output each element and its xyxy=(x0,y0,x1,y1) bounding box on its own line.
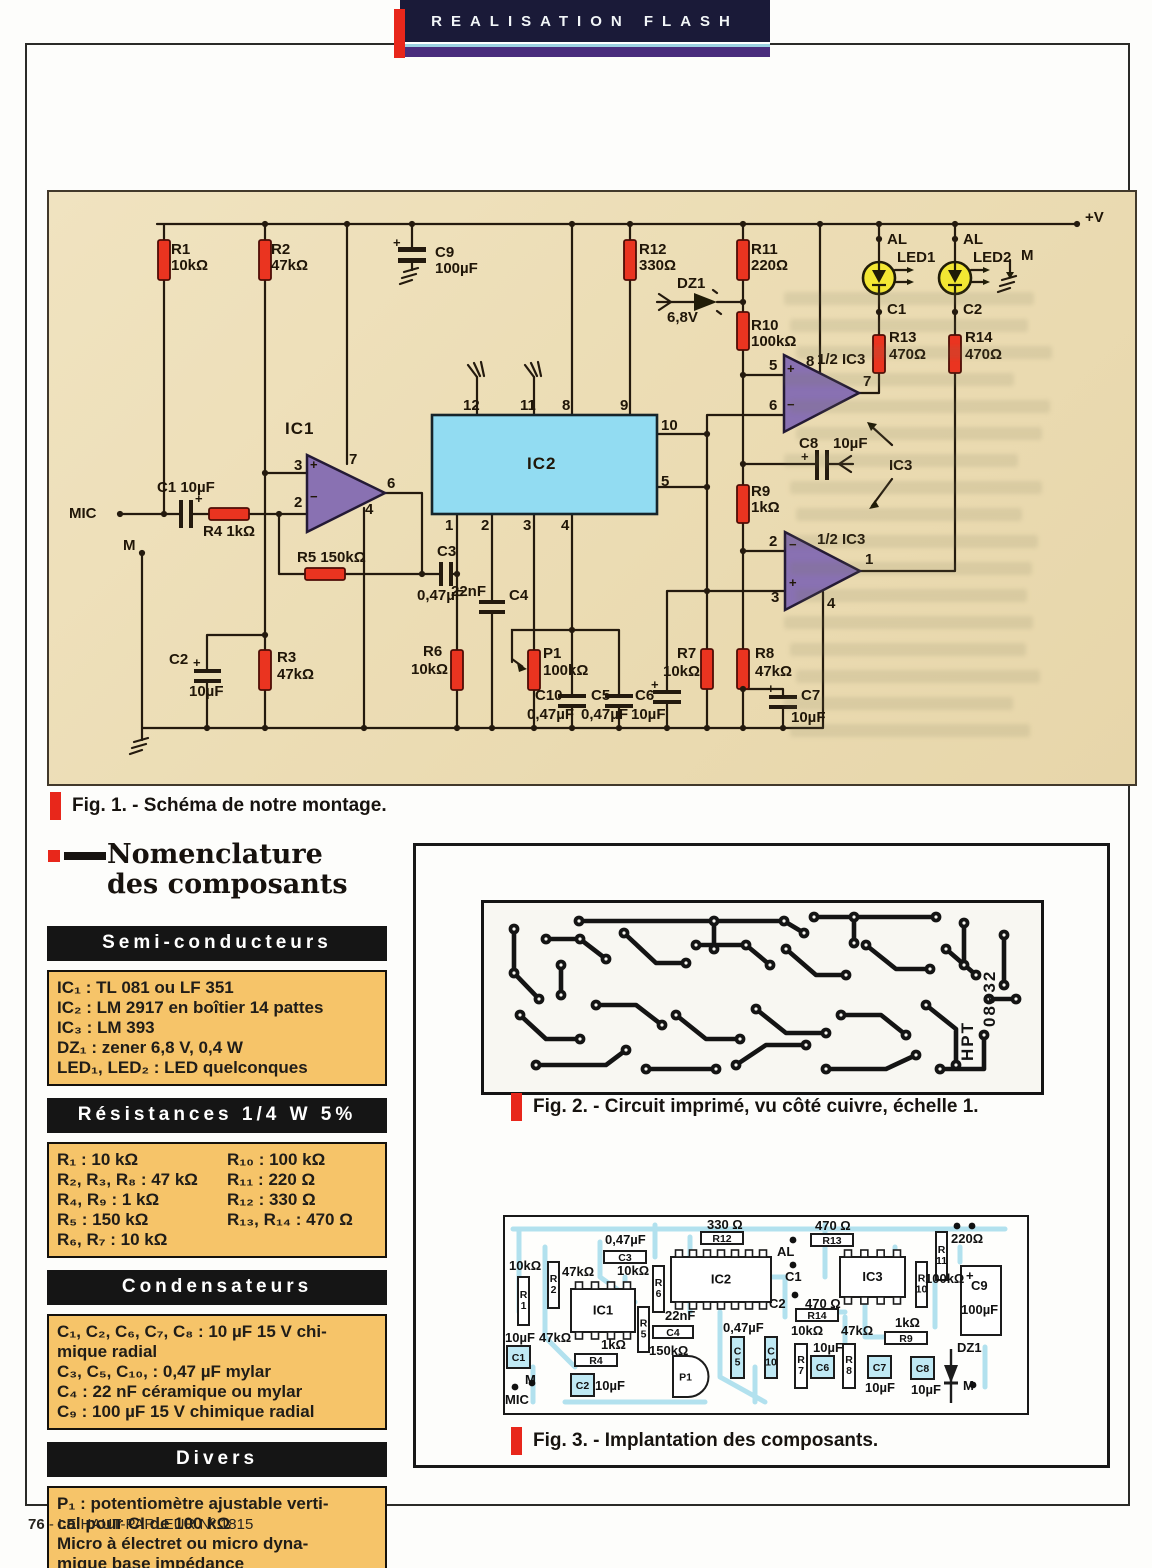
schematic-label: P1 xyxy=(543,646,561,661)
schematic-label: R9 xyxy=(751,484,770,499)
implantation-label: 470 Ω xyxy=(815,1218,851,1233)
implantation-part-R9: R9 xyxy=(885,1332,927,1345)
schematic-label: 10µF xyxy=(189,684,224,699)
schematic-label: 1kΩ xyxy=(751,500,780,515)
fig1-caption: Fig. 1. - Schéma de notre montage. xyxy=(72,795,387,817)
implantation-label: 10kΩ xyxy=(509,1258,541,1273)
svg-text:R13: R13 xyxy=(822,1235,841,1247)
bleedthrough-line xyxy=(784,373,1014,386)
schematic-label: R12 xyxy=(639,242,667,257)
schematic-label: 330Ω xyxy=(639,258,676,273)
schematic-label: 2 xyxy=(481,518,489,533)
banner-stripe-purple xyxy=(404,47,770,57)
section-box-semiconducteurs: IC₁ : TL 081 ou LF 351IC₂ : LM 2917 en b… xyxy=(47,970,387,1086)
implantation-label: MIC xyxy=(505,1392,529,1407)
schematic-label: C5 xyxy=(591,688,610,703)
fig3-implantation: IC1IC2IC3R1R2R6R5R7R8R10R11C3R12R13R14R9… xyxy=(503,1215,1029,1415)
nomenclature-line: IC₃ : LM 393 xyxy=(57,1018,377,1038)
footer-text: - LE HAUT-PARLEUR Nº 1815 xyxy=(45,1516,254,1533)
schematic-label: 100kΩ xyxy=(543,663,588,678)
svg-text:C8: C8 xyxy=(916,1363,930,1375)
implantation-label: 1kΩ xyxy=(601,1337,626,1352)
schematic-label: + xyxy=(193,656,201,669)
schematic-label: 10kΩ xyxy=(663,664,700,679)
nomenclature-line: IC₂ : LM 2917 en boîtier 14 pattes xyxy=(57,998,377,1018)
schematic-label: R11 xyxy=(751,242,778,257)
bleedthrough-line xyxy=(790,400,1050,413)
schematic-label: 11 xyxy=(520,398,536,413)
section-header-resistances: Résistances 1/4 W 5% xyxy=(47,1098,387,1133)
schematic-label: IC2 xyxy=(527,455,556,472)
schematic-label: 4 xyxy=(365,502,373,517)
fig2-pcb: HPT 08932 xyxy=(481,900,1044,1095)
schematic-label: 3 xyxy=(523,518,531,533)
implantation-part-R1: R1 xyxy=(518,1277,529,1325)
page-number: 76 xyxy=(28,1516,45,1533)
schematic-label: 10µF xyxy=(791,710,826,725)
magazine-page: REALISATION FLASH xyxy=(0,0,1152,1568)
nomenclature-line: P₁ : potentiomètre ajustable verti- xyxy=(57,1494,377,1514)
svg-text:R9: R9 xyxy=(899,1333,913,1345)
implantation-label: 47kΩ xyxy=(539,1330,571,1345)
schematic-label: + xyxy=(195,492,203,505)
implantation-label: 150kΩ xyxy=(649,1343,688,1358)
implantation-part-P1: P1 xyxy=(673,1356,708,1397)
nomenclature-line: C₉ : 100 µF 15 V chimique radial xyxy=(57,1402,377,1422)
implantation-part-C1: C1 xyxy=(507,1346,530,1368)
implantation-label: 10µF xyxy=(911,1382,941,1397)
implantation-label: + xyxy=(966,1268,974,1283)
svg-text:IC2: IC2 xyxy=(711,1272,731,1287)
nomenclature-line: C₄ : 22 nF céramique ou mylar xyxy=(57,1382,377,1402)
schematic-label: 100µF xyxy=(435,261,478,276)
nomenclature-line: R₅ : 150 kΩ xyxy=(57,1210,227,1230)
schematic-label: LED1 xyxy=(897,250,935,265)
section-box-resistances: R₁ : 10 kΩR₂, R₃, R₈ : 47 kΩR₄, R₉ : 1 k… xyxy=(47,1142,387,1258)
implantation-label: 10kΩ xyxy=(617,1263,649,1278)
implantation-label: 10µF xyxy=(813,1340,843,1355)
schematic-label: R5 150kΩ xyxy=(297,550,366,565)
bleedthrough-line xyxy=(796,670,1040,683)
implantation-label: 330 Ω xyxy=(707,1217,743,1232)
nomenclature-line: R₁₂ : 330 Ω xyxy=(227,1190,353,1210)
banner: REALISATION FLASH xyxy=(400,0,770,42)
schematic-label: R8 xyxy=(755,646,774,661)
resistances-col2: R₁₀ : 100 kΩR₁₁ : 220 ΩR₁₂ : 330 ΩR₁₃, R… xyxy=(227,1150,353,1250)
fig2-caption-bar xyxy=(511,1093,522,1121)
implantation-part-R12: R12 xyxy=(701,1232,743,1245)
schematic-label: + xyxy=(767,682,775,695)
pcb-drawing: HPT 08932 xyxy=(484,903,1041,1092)
dash-icon xyxy=(64,852,106,860)
schematic-label: 6,8V xyxy=(667,310,698,325)
implantation-part-R6: R6 xyxy=(653,1266,664,1312)
schematic-label: R7 xyxy=(677,646,696,661)
implantation-label: M xyxy=(525,1372,536,1387)
implantation-label: 0,47µF xyxy=(723,1320,764,1335)
schematic-label: C1 10µF xyxy=(157,480,215,495)
implantation-part-C6: C6 xyxy=(811,1356,834,1378)
bleedthrough-line xyxy=(784,616,1033,629)
schematic-label: C3 xyxy=(437,544,456,559)
implantation-part-IC2: IC2 xyxy=(671,1250,771,1309)
schematic-label: M xyxy=(123,538,136,553)
fig2-caption: Fig. 2. - Circuit imprimé, vu côté cuivr… xyxy=(533,1096,979,1118)
implantation-label: 10kΩ xyxy=(791,1323,823,1338)
fig1-caption-bar xyxy=(50,792,61,820)
implantation-label: DZ1 xyxy=(957,1340,982,1355)
bleedthrough-line xyxy=(784,535,1038,548)
schematic-label: + xyxy=(789,576,797,589)
bleedthrough-line xyxy=(790,481,1042,494)
implantation-label: M xyxy=(963,1378,974,1393)
bleedthrough-line xyxy=(784,454,1018,467)
section-header-divers: Divers xyxy=(47,1442,387,1477)
bleedthrough-line xyxy=(796,508,1022,521)
schematic-label: 7 xyxy=(349,452,357,467)
implantation-label: 220Ω xyxy=(951,1231,983,1246)
schematic-label: AL xyxy=(963,232,983,247)
bleedthrough-line xyxy=(790,643,1026,656)
nomenclature-line: IC₁ : TL 081 ou LF 351 xyxy=(57,978,377,998)
implantation-part-R2: R2 xyxy=(548,1262,559,1308)
schematic-label: 5 xyxy=(769,358,777,373)
implantation-part-component xyxy=(944,1349,958,1403)
schematic-label: 3 xyxy=(771,590,779,605)
fig3-caption-bar xyxy=(511,1427,522,1455)
schematic-label: 10 xyxy=(661,418,678,433)
schematic-label: C9 xyxy=(435,245,454,260)
bleedthrough-line xyxy=(796,589,1027,602)
implantation-label: C2 xyxy=(769,1296,786,1311)
nomenclature-line: R₁₀ : 100 kΩ xyxy=(227,1150,353,1170)
banner-red-bar xyxy=(394,9,405,58)
schematic-label: R6 xyxy=(423,644,442,659)
schematic-label: IC1 xyxy=(285,420,314,437)
figures-box: HPT 08932 Fig. 2. - Circuit imprimé, vu … xyxy=(413,843,1110,1468)
fig3-caption: Fig. 3. - Implantation des composants. xyxy=(533,1430,878,1452)
nomenclature-line: mique base impédance xyxy=(57,1554,377,1568)
svg-text:IC3: IC3 xyxy=(862,1269,882,1284)
schematic-label: R1 xyxy=(171,242,190,257)
implantation-label: 22nF xyxy=(665,1308,695,1323)
schematic-label: 6 xyxy=(387,476,395,491)
page-footer: 76 - LE HAUT-PARLEUR Nº 1815 xyxy=(28,1516,253,1533)
svg-text:R12: R12 xyxy=(712,1233,731,1245)
implantation-part-C5: C5 xyxy=(731,1337,744,1378)
implantation-label: 100µF xyxy=(961,1302,998,1317)
implantation-label: 47kΩ xyxy=(841,1323,873,1338)
bleedthrough-line xyxy=(790,724,1030,737)
nomenclature-line: DZ₁ : zener 6,8 V, 0,4 W xyxy=(57,1038,377,1058)
svg-text:C1: C1 xyxy=(512,1352,526,1364)
section-box-condensateurs: C₁, C₂, C₆, C₇, C₈ : 10 µF 15 V chi-miqu… xyxy=(47,1314,387,1430)
red-square-icon xyxy=(48,850,60,862)
schematic-label: 47kΩ xyxy=(755,664,792,679)
svg-text:C6: C6 xyxy=(816,1362,830,1374)
svg-text:R14: R14 xyxy=(807,1310,826,1322)
implantation-drawing: IC1IC2IC3R1R2R6R5R7R8R10R11C3R12R13R14R9… xyxy=(505,1217,1027,1413)
implantation-label: C1 xyxy=(785,1269,802,1284)
bleedthrough-line xyxy=(784,292,1034,305)
nomenclature-line: R₁ : 10 kΩ xyxy=(57,1150,227,1170)
schematic-label: C10 xyxy=(535,688,563,703)
schematic-label: AL xyxy=(887,232,907,247)
implantation-part-C2: C2 xyxy=(571,1374,594,1396)
nomenclature: Nomenclature des composants Semi-conduct… xyxy=(47,840,387,1568)
schematic-label: 0,47µF xyxy=(581,707,628,722)
schematic-label: 10kΩ xyxy=(411,662,448,677)
bleedthrough-line xyxy=(796,346,1052,359)
schematic-label: − xyxy=(310,490,318,503)
schematic-label: 47kΩ xyxy=(277,667,314,682)
implantation-part-IC3: IC3 xyxy=(840,1250,905,1304)
section-header-condensateurs: Condensateurs xyxy=(47,1270,387,1305)
implantation-label: 47kΩ xyxy=(562,1264,594,1279)
schematic-label: 10µF xyxy=(631,707,666,722)
schematic-label: R2 xyxy=(271,242,290,257)
implantation-part-R13: R13 xyxy=(811,1234,853,1247)
schematic-label: M xyxy=(1021,248,1034,263)
pcb-marking-hpt: HPT xyxy=(958,1021,977,1061)
section-header-semiconducteurs: Semi-conducteurs xyxy=(47,926,387,961)
bleedthrough-line xyxy=(784,697,1013,710)
svg-text:IC1: IC1 xyxy=(593,1303,613,1318)
schematic-label: 2 xyxy=(294,495,302,510)
implantation-part-R4: R4 xyxy=(575,1354,617,1367)
svg-text:R4: R4 xyxy=(589,1355,603,1367)
svg-text:C7: C7 xyxy=(873,1362,887,1374)
banner-title: REALISATION FLASH xyxy=(431,13,739,30)
pcb-marking-number: 08932 xyxy=(980,970,999,1027)
implantation-label: 10µF xyxy=(595,1378,625,1393)
schematic-label: 5 xyxy=(661,474,669,489)
implantation-label: 10µF xyxy=(865,1380,895,1395)
schematic-label: + xyxy=(310,458,318,471)
resistances-col1: R₁ : 10 kΩR₂, R₃, R₈ : 47 kΩR₄, R₉ : 1 k… xyxy=(57,1150,227,1250)
bleedthrough-line xyxy=(790,319,1028,332)
nomenclature-line: R₁₁ : 220 Ω xyxy=(227,1170,353,1190)
nomenclature-line: LED₁, LED₂ : LED quelconques xyxy=(57,1058,377,1078)
nomenclature-line: Micro à électret ou micro dyna- xyxy=(57,1534,377,1554)
schematic-label: 6 xyxy=(769,398,777,413)
nomenclature-line: R₄, R₉ : 1 kΩ xyxy=(57,1190,227,1210)
schematic-label: 4 xyxy=(561,518,569,533)
schematic-label: +V xyxy=(1085,210,1104,225)
schematic-label: 22nF xyxy=(451,584,486,599)
schematic-label: C4 xyxy=(509,588,528,603)
schematic-label: 2 xyxy=(769,534,777,549)
schematic-label: R10 xyxy=(751,318,779,333)
schematic-label: 8 xyxy=(562,398,570,413)
nomenclature-line: mique radial xyxy=(57,1342,377,1362)
schematic-label: C2 xyxy=(169,652,188,667)
implantation-part-C10: C10 xyxy=(765,1337,777,1378)
implantation-label: 10µF xyxy=(505,1330,535,1345)
implantation-label: AL xyxy=(777,1244,794,1259)
svg-text:C2: C2 xyxy=(576,1380,590,1392)
fig1-schematic-panel: +VR110kΩR247kΩ+C9100µFR12330ΩR11220ΩDZ16… xyxy=(47,190,1137,786)
schematic-label: 10kΩ xyxy=(171,258,208,273)
schematic-label: R13 xyxy=(889,330,917,345)
bleedthrough-line xyxy=(790,562,1032,575)
implantation-part-R5: R5 xyxy=(638,1307,649,1352)
implantation-part-IC1: IC1 xyxy=(571,1282,635,1339)
schematic-label: 220Ω xyxy=(751,258,788,273)
schematic-label: 9 xyxy=(620,398,628,413)
implantation-part-C8: C8 xyxy=(911,1357,934,1379)
nomenclature-line: R₁₃, R₁₄ : 470 Ω xyxy=(227,1210,353,1230)
implantation-label: 1kΩ xyxy=(895,1315,920,1330)
schematic-label: + xyxy=(393,236,401,249)
schematic-label: R3 xyxy=(277,650,296,665)
schematic-label: 1 xyxy=(445,518,453,533)
svg-text:P1: P1 xyxy=(679,1372,692,1384)
bleedthrough-line xyxy=(796,427,1042,440)
nomenclature-line: C₁, C₂, C₆, C₇, C₈ : 10 µF 15 V chi- xyxy=(57,1322,377,1342)
implantation-part-R8: R8 xyxy=(843,1344,855,1388)
nomenclature-line: C₃, C₅, C₁₀, : 0,47 µF mylar xyxy=(57,1362,377,1382)
schematic-label: R14 xyxy=(965,330,993,345)
svg-text:C4: C4 xyxy=(666,1327,680,1339)
schematic-label: 0,47µF xyxy=(527,707,574,722)
schematic-label: 12 xyxy=(463,398,480,413)
implantation-part-R7: R7 xyxy=(795,1344,807,1388)
schematic-label: R4 1kΩ xyxy=(203,524,255,539)
implantation-label: 470 Ω xyxy=(805,1296,841,1311)
schematic-label: DZ1 xyxy=(677,276,705,291)
schematic-label: 3 xyxy=(294,458,302,473)
nomenclature-title: Nomenclature des composants xyxy=(47,840,387,900)
nomenclature-line: R₂, R₃, R₈ : 47 kΩ xyxy=(57,1170,227,1190)
implantation-part-C4: C4 xyxy=(653,1326,693,1339)
implantation-label: 0,47µF xyxy=(605,1232,646,1247)
implantation-part-C7: C7 xyxy=(868,1356,891,1378)
schematic-label: 47kΩ xyxy=(271,258,308,273)
schematic-label: C6 xyxy=(635,688,654,703)
implantation-label: 100kΩ xyxy=(925,1271,964,1286)
nomenclature-line: R₆, R₇ : 10 kΩ xyxy=(57,1230,227,1250)
schematic-label: LED2 xyxy=(973,250,1011,265)
nomenclature-title-line1: Nomenclature xyxy=(107,840,387,870)
nomenclature-title-line2: des composants xyxy=(107,870,387,900)
schematic-label: 100kΩ xyxy=(751,334,796,349)
schematic-label: MIC xyxy=(69,506,97,521)
